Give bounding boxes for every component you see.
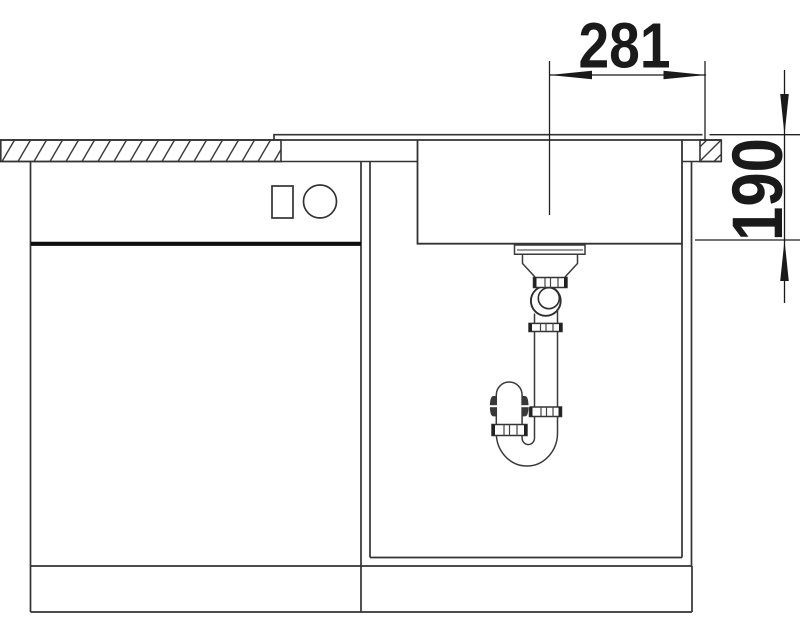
svg-text:190: 190 bbox=[718, 138, 798, 241]
svg-text:281: 281 bbox=[579, 10, 671, 82]
